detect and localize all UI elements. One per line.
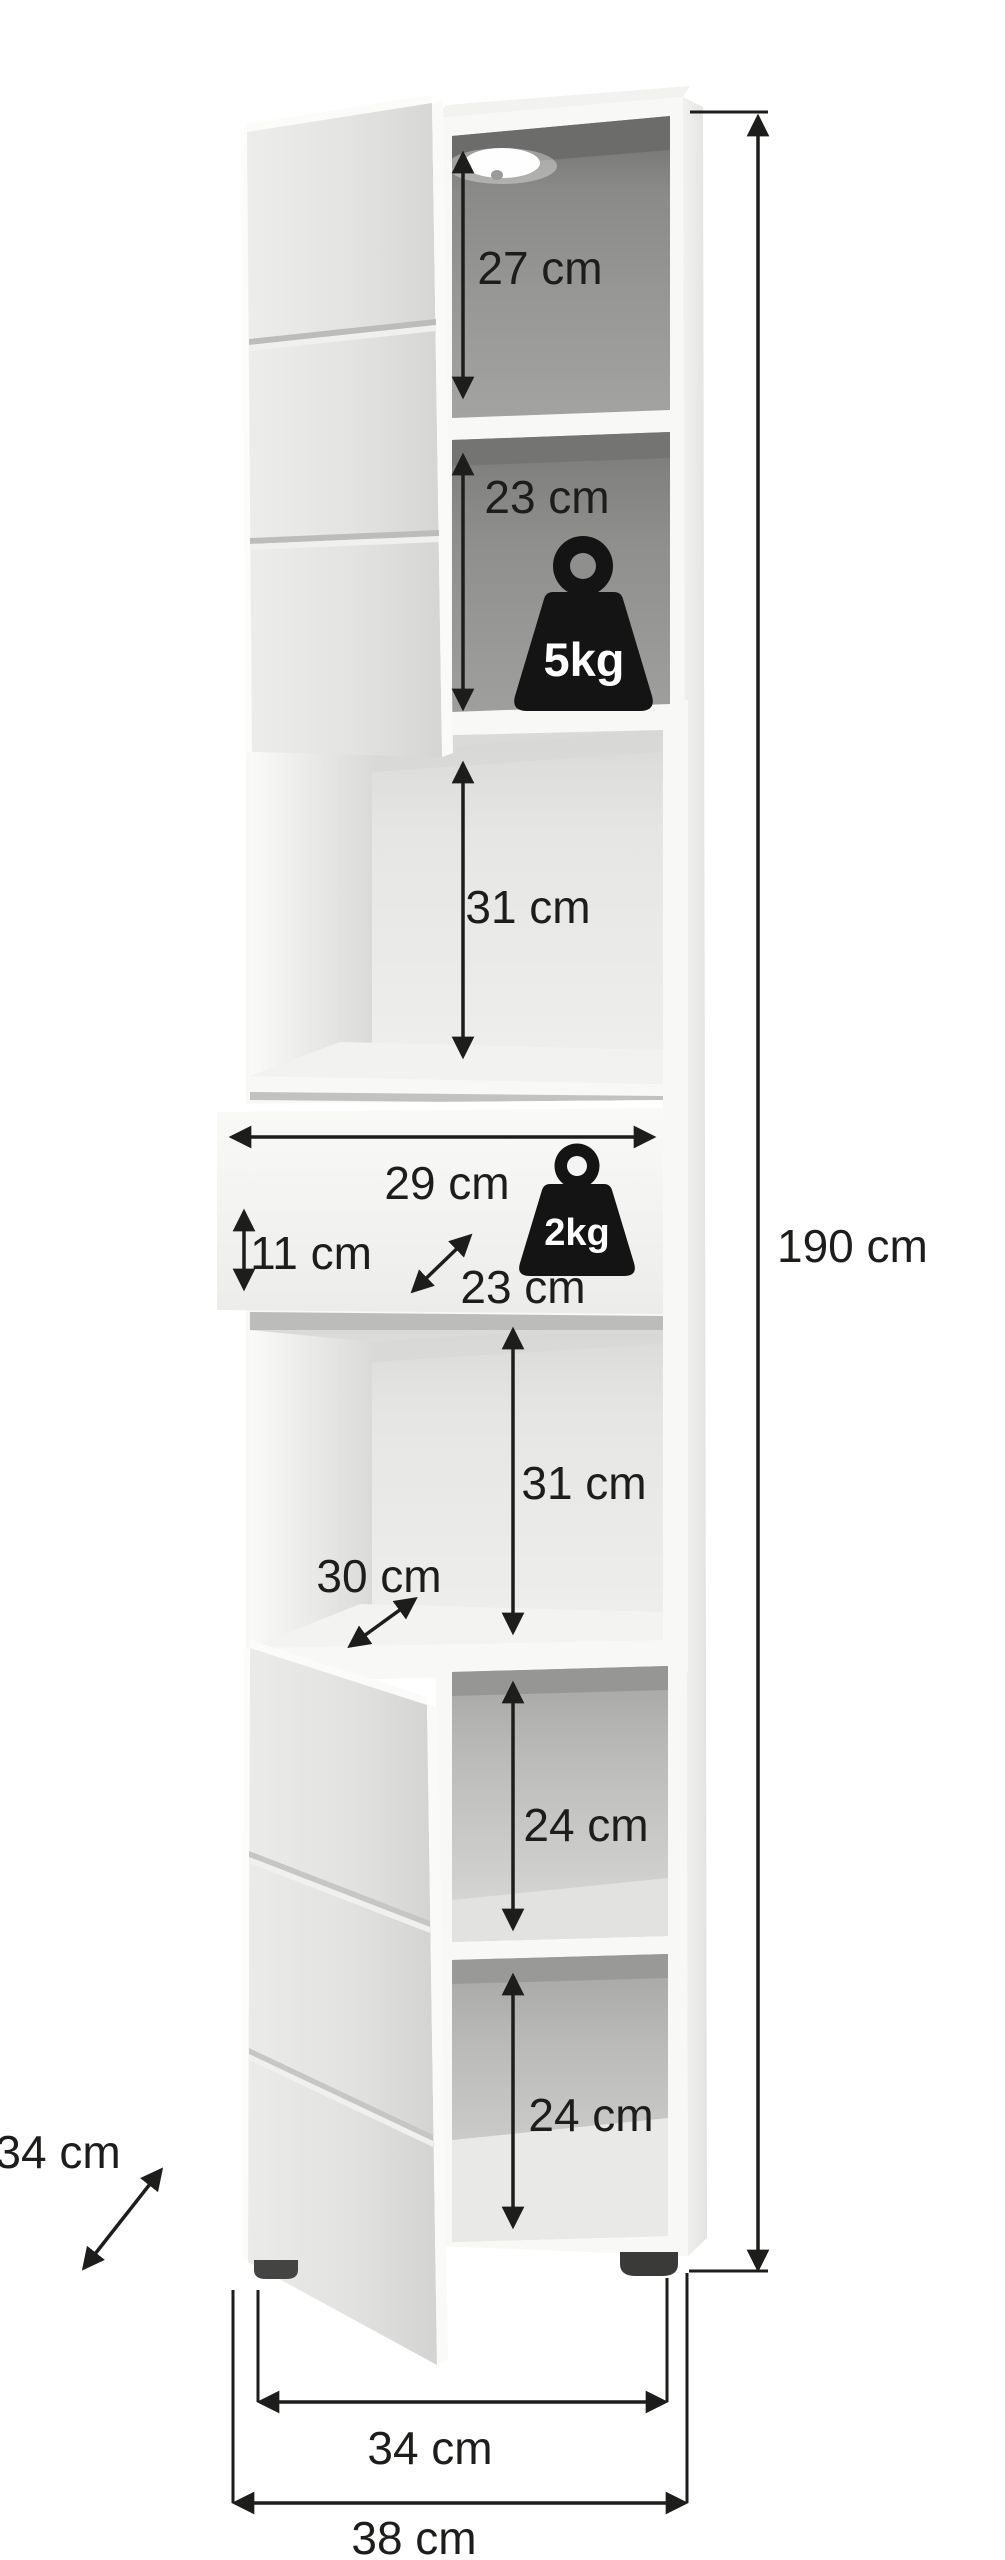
label-31cm-upper: 31 cm [465,881,590,933]
cabinet-foot-left [254,2260,298,2279]
label-24cm-lower: 24 cm [528,2089,653,2141]
label-depth-34cm: 34 cm [0,2126,121,2178]
dim-arrow-depth-34cm [84,2170,161,2268]
label-31cm-lower: 31 cm [521,1457,646,1509]
weight-5kg-ring-hole [570,553,596,579]
label-27cm: 27 cm [477,242,602,294]
bottom-door-front [248,1648,437,2365]
label-24cm-upper: 24 cm [523,1799,648,1851]
label-11cm: 11 cm [250,1227,372,1279]
weight-5kg-label: 5kg [544,633,625,686]
compartment-3-interior [250,730,663,1084]
light-dot [491,170,503,180]
top-door-front [247,103,442,757]
label-34cm-inner: 34 cm [367,2422,492,2474]
bottom-door [242,1640,448,2365]
cabinet-foot-right [620,2252,678,2276]
label-30cm: 30 cm [316,1550,441,1602]
label-190cm: 190 cm [777,1220,928,1272]
label-29cm: 29 cm [384,1157,509,1209]
label-drawer-23cm: 23 cm [460,1261,585,1313]
top-door [241,95,453,757]
weight-2kg-label: 2kg [544,1212,609,1254]
label-38cm: 38 cm [351,2512,476,2560]
weight-2kg-ring-hole [567,1156,587,1176]
label-23cm: 23 cm [484,471,609,523]
product-dimension-image: 5kg 2kg [0,0,1005,2560]
cabinet-diagram: 5kg 2kg [0,0,1005,2560]
compartment-3-left-wall [250,740,372,1076]
